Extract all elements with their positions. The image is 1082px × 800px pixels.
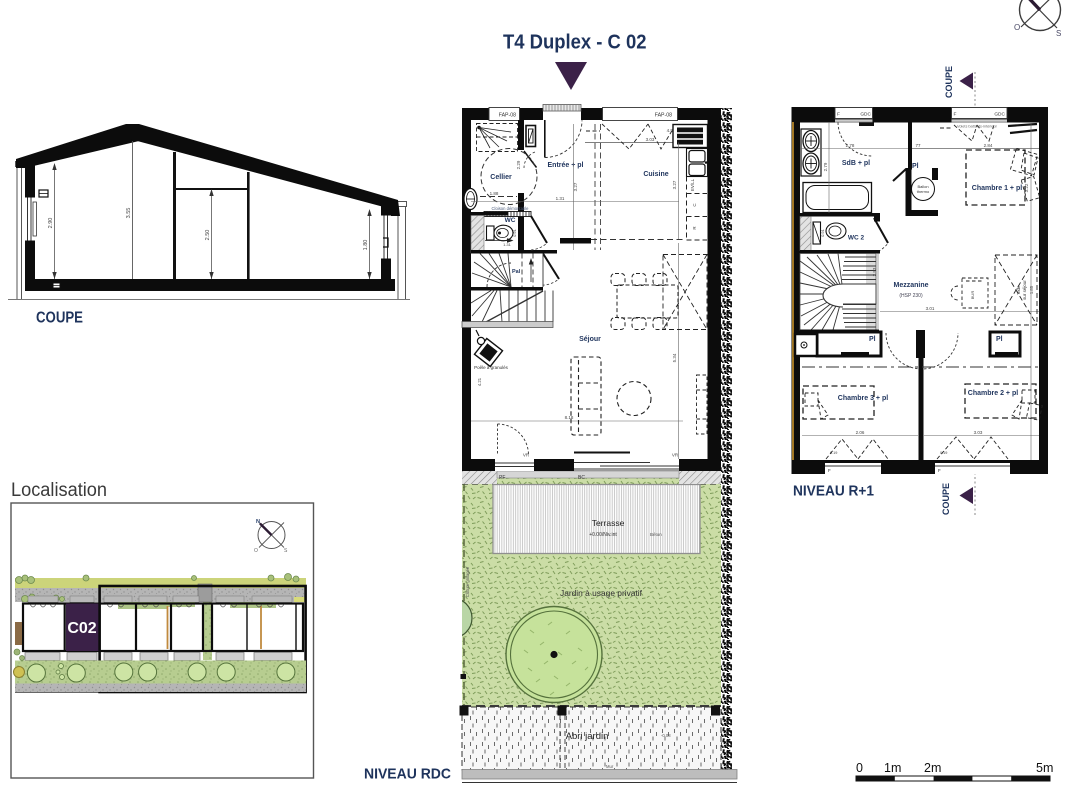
svg-text:F: F [837,112,840,118]
svg-text:+0.00/Niv.int: +0.00/Niv.int [589,532,617,538]
svg-text:Séjour: Séjour [579,336,601,343]
svg-text:Pl: Pl [869,336,876,343]
svg-text:Cuisine: Cuisine [643,171,668,178]
svg-text:3.27: 3.27 [672,180,677,189]
svg-text:VR: VR [672,453,679,458]
svg-text:Chambre 2 + pl: Chambre 2 + pl [968,390,1018,397]
svg-text:3.03: 3.03 [974,430,983,435]
svg-text:2.78: 2.78 [846,143,855,148]
svg-text:0: 0 [856,761,863,775]
svg-text:Cloison démontable: Cloison démontable [491,206,529,211]
svg-text:N: N [256,519,260,525]
svg-text:3.03: 3.03 [646,137,655,142]
svg-text:Chambre 3 + pl: Chambre 3 + pl [838,395,888,402]
svg-text:O: O [254,548,258,554]
svg-text:C02: C02 [67,620,96,637]
svg-text:4.21: 4.21 [477,377,482,386]
svg-text:1.31: 1.31 [556,196,565,201]
svg-text:1.85: 1.85 [1029,285,1034,294]
svg-text:Pl: Pl [912,163,919,170]
svg-text:0.91: 0.91 [820,228,825,237]
svg-text:COUPE: COUPE [944,66,954,98]
svg-text:Clôture grillagée: Clôture grillagée [465,566,470,597]
svg-text:Béton: Béton [650,532,662,537]
svg-text:NIVEAU R+1: NIVEAU R+1 [793,483,874,500]
svg-text:FAP-08: FAP-08 [499,113,516,119]
svg-text:Abri jardin: Abri jardin [566,731,609,742]
svg-text:1.80: 1.80 [363,240,369,251]
svg-text:2.50: 2.50 [205,230,211,241]
svg-text:Cellier: Cellier [490,174,512,181]
svg-text:Terrasse: Terrasse [592,518,625,528]
svg-text:Pl: Pl [996,336,1003,343]
svg-text:Entrée + pl: Entrée + pl [548,162,584,169]
svg-text:-0.08: -0.08 [661,733,671,738]
svg-text:(HSP 230): (HSP 230) [899,293,923,299]
svg-text:0.91: 0.91 [512,228,517,237]
svg-text:1.31: 1.31 [503,242,512,247]
svg-text:2.90: 2.90 [48,218,54,229]
svg-text:2.84: 2.84 [984,143,993,148]
svg-text:PF: PF [499,475,505,481]
svg-text:FAP-08: FAP-08 [655,113,672,119]
svg-text:8.18: 8.18 [565,415,574,420]
svg-text:1m: 1m [884,761,901,775]
svg-text:Chambre 1 + pl: Chambre 1 + pl [972,185,1022,192]
svg-text:O: O [1014,23,1020,32]
svg-text:GDC: GDC [860,112,871,118]
svg-text:F: F [828,468,831,473]
svg-text:Volets battants-intérieur: Volets battants-intérieur [957,125,998,129]
svg-text:5.34: 5.34 [672,353,677,362]
svg-text:2m: 2m [924,761,941,775]
svg-text:NIVEAU RDC: NIVEAU RDC [364,766,451,783]
svg-text:2.93: 2.93 [872,267,877,276]
svg-text:sur séjour: sur séjour [1022,280,1027,300]
svg-text:0.19: 0.19 [940,451,947,455]
svg-text:3.55: 3.55 [126,208,132,219]
svg-text:SdB + pl: SdB + pl [842,160,870,167]
svg-text:Pal: Pal [512,269,521,275]
svg-text:Mezzanine: Mezzanine [893,282,928,289]
svg-text:0.19: 0.19 [830,451,837,455]
svg-text:T4 Duplex - C 02: T4 Duplex - C 02 [503,32,647,54]
svg-text:BC: BC [578,475,585,481]
svg-text:Vide: Vide [1016,285,1021,294]
svg-text:F: F [938,468,941,473]
svg-text:F: F [954,112,957,118]
svg-text:Mur: Mur [606,764,614,769]
svg-text:2.79: 2.79 [823,162,828,171]
svg-text:77: 77 [915,143,921,148]
svg-text:WC 2: WC 2 [848,235,865,242]
svg-text:Jardin à usage privatif: Jardin à usage privatif [560,588,643,598]
svg-text:GDC: GDC [994,112,1005,118]
svg-text:BUR: BUR [970,291,975,300]
svg-text:VR: VR [523,453,530,458]
svg-text:S: S [1056,29,1061,38]
svg-text:3.27: 3.27 [573,182,578,191]
svg-text:WC: WC [505,217,516,224]
svg-text:COUPE: COUPE [36,310,83,327]
svg-text:Localisation: Localisation [11,480,107,501]
svg-text:EV/LL: EV/LL [690,178,695,191]
svg-text:2.06: 2.06 [856,430,865,435]
svg-text:thermo: thermo [917,189,930,194]
svg-text:COUPE: COUPE [941,483,951,515]
svg-text:2.29: 2.29 [516,160,521,169]
svg-text:1.88: 1.88 [490,191,499,196]
svg-text:Poêle à granulés: Poêle à granulés [474,365,509,370]
svg-text:3.01: 3.01 [926,306,935,311]
svg-text:5m: 5m [1036,761,1053,775]
